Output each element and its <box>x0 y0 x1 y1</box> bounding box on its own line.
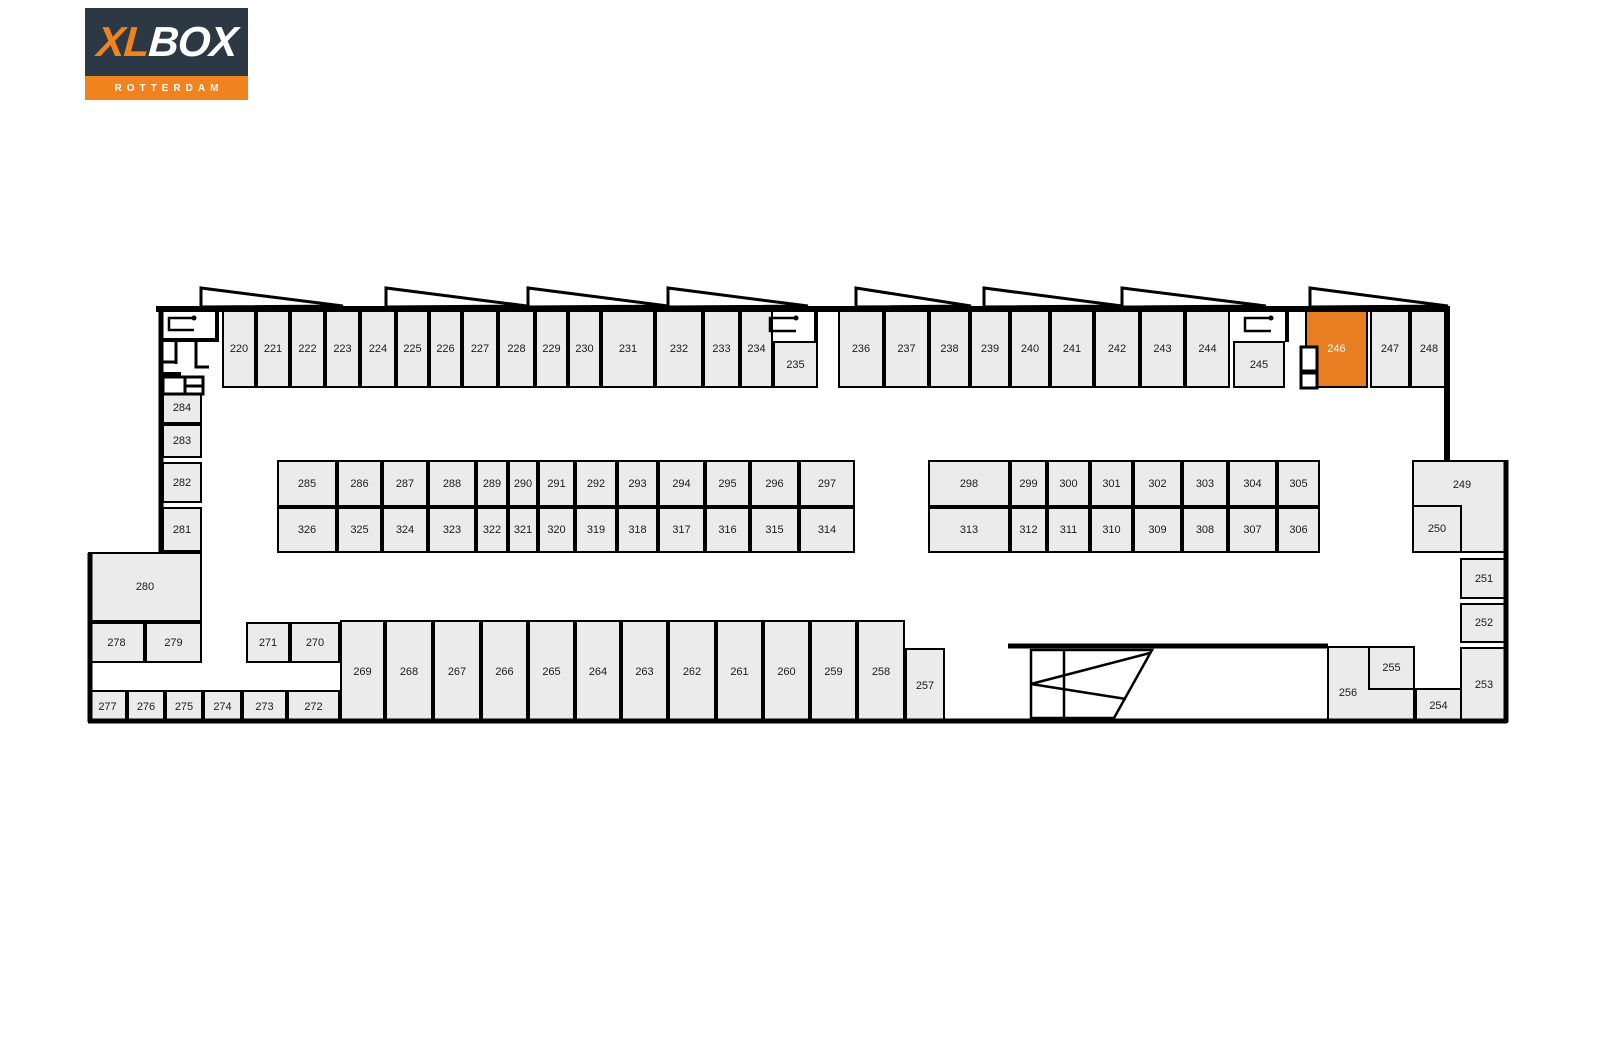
unit-262[interactable]: 262 <box>668 620 716 723</box>
unit-233[interactable]: 233 <box>703 309 740 388</box>
unit-301[interactable]: 301 <box>1090 460 1133 507</box>
unit-288[interactable]: 288 <box>428 460 476 507</box>
unit-298[interactable]: 298 <box>928 460 1010 507</box>
unit-292[interactable]: 292 <box>575 460 617 507</box>
unit-label: 269 <box>353 666 371 678</box>
unit-279[interactable]: 279 <box>145 622 202 663</box>
unit-252[interactable]: 252 <box>1460 603 1508 643</box>
unit-269[interactable]: 269 <box>340 620 385 723</box>
unit-275[interactable]: 275 <box>165 690 203 723</box>
unit-label: 250 <box>1428 523 1446 535</box>
logo-xl: XL <box>95 18 150 65</box>
unit-label: 263 <box>635 666 653 678</box>
unit-272[interactable]: 272 <box>287 690 340 723</box>
unit-236[interactable]: 236 <box>838 309 884 388</box>
unit-label: 316 <box>718 524 736 536</box>
unit-label: 295 <box>718 478 736 490</box>
unit-260[interactable]: 260 <box>763 620 810 723</box>
entrance-partitions <box>159 342 209 374</box>
unit-245[interactable]: 245 <box>1233 341 1285 388</box>
unit-318[interactable]: 318 <box>617 507 658 553</box>
unit-label: 228 <box>507 343 525 355</box>
unit-label: 231 <box>619 343 637 355</box>
unit-220[interactable]: 220 <box>222 309 256 388</box>
logo-wordmark: XLBOX <box>85 8 248 76</box>
unit-257[interactable]: 257 <box>905 648 945 723</box>
unit-317[interactable]: 317 <box>658 507 705 553</box>
unit-label: 240 <box>1021 343 1039 355</box>
unit-225[interactable]: 225 <box>396 309 429 388</box>
unit-250[interactable]: 250 <box>1412 505 1462 553</box>
unit-324[interactable]: 324 <box>382 507 428 553</box>
unit-290[interactable]: 290 <box>508 460 538 507</box>
unit-label: 275 <box>175 701 193 713</box>
unit-266[interactable]: 266 <box>481 620 528 723</box>
unit-287[interactable]: 287 <box>382 460 428 507</box>
unit-label: 278 <box>107 637 125 649</box>
unit-label: 259 <box>824 666 842 678</box>
unit-253[interactable]: 253 <box>1460 647 1508 723</box>
unit-244[interactable]: 244 <box>1185 309 1230 388</box>
unit-label: 227 <box>471 343 489 355</box>
unit-283[interactable]: 283 <box>162 424 202 458</box>
unit-310[interactable]: 310 <box>1090 507 1133 553</box>
unit-314[interactable]: 314 <box>799 507 855 553</box>
unit-322[interactable]: 322 <box>476 507 508 553</box>
unit-label: 310 <box>1102 524 1120 536</box>
unit-234[interactable]: 234 <box>740 309 773 388</box>
unit-label: 324 <box>396 524 414 536</box>
unit-311[interactable]: 311 <box>1047 507 1090 553</box>
unit-label: 283 <box>173 435 191 447</box>
floor-plan: XLBOX ROTTERDAM 220221222223224225226227… <box>0 0 1600 1040</box>
unit-label: 288 <box>443 478 461 490</box>
unit-271[interactable]: 271 <box>246 622 290 663</box>
unit-276[interactable]: 276 <box>127 690 165 723</box>
unit-246[interactable]: 246 <box>1305 309 1368 388</box>
unit-277[interactable]: 277 <box>88 690 127 723</box>
unit-293[interactable]: 293 <box>617 460 658 507</box>
unit-label: 232 <box>670 343 688 355</box>
unit-label: 243 <box>1153 343 1171 355</box>
unit-300[interactable]: 300 <box>1047 460 1090 507</box>
unit-label: 312 <box>1019 524 1037 536</box>
unit-label: 247 <box>1381 343 1399 355</box>
unit-295[interactable]: 295 <box>705 460 750 507</box>
unit-294[interactable]: 294 <box>658 460 705 507</box>
unit-label: 307 <box>1243 524 1261 536</box>
stairs-icon <box>1031 650 1152 718</box>
unit-235[interactable]: 235 <box>773 341 818 388</box>
unit-221[interactable]: 221 <box>256 309 290 388</box>
unit-285[interactable]: 285 <box>277 460 337 507</box>
unit-247[interactable]: 247 <box>1370 309 1410 388</box>
unit-label: 248 <box>1420 343 1438 355</box>
unit-label: 245 <box>1250 359 1268 371</box>
unit-label: 244 <box>1198 343 1216 355</box>
unit-label: 318 <box>628 524 646 536</box>
logo-text: XLBOX <box>95 21 238 63</box>
unit-291[interactable]: 291 <box>538 460 575 507</box>
unit-label: 279 <box>164 637 182 649</box>
unit-label: 299 <box>1019 478 1037 490</box>
unit-label: 303 <box>1196 478 1214 490</box>
unit-label: 289 <box>483 478 501 490</box>
unit-label: 282 <box>173 477 191 489</box>
unit-label: 237 <box>897 343 915 355</box>
unit-223[interactable]: 223 <box>325 309 360 388</box>
unit-label: 260 <box>777 666 795 678</box>
unit-231[interactable]: 231 <box>601 309 655 388</box>
unit-label: 251 <box>1475 573 1493 585</box>
unit-label: 241 <box>1063 343 1081 355</box>
unit-label: 224 <box>369 343 387 355</box>
unit-label: 230 <box>575 343 593 355</box>
unit-label: 235 <box>786 359 804 371</box>
unit-label: 284 <box>173 402 191 414</box>
unit-243[interactable]: 243 <box>1140 309 1185 388</box>
unit-label: 246 <box>1327 343 1345 355</box>
logo-box: BOX <box>147 18 238 65</box>
unit-label: 314 <box>818 524 836 536</box>
unit-299[interactable]: 299 <box>1010 460 1047 507</box>
unit-261[interactable]: 261 <box>716 620 763 723</box>
unit-label: 309 <box>1148 524 1166 536</box>
unit-label: 267 <box>448 666 466 678</box>
unit-264[interactable]: 264 <box>575 620 621 723</box>
unit-302[interactable]: 302 <box>1133 460 1182 507</box>
unit-286[interactable]: 286 <box>337 460 382 507</box>
unit-267[interactable]: 267 <box>433 620 481 723</box>
unit-label: 265 <box>542 666 560 678</box>
unit-label: 277 <box>98 701 116 713</box>
unit-label: 256 <box>1339 687 1357 699</box>
unit-label: 271 <box>259 637 277 649</box>
logo-city-bar: ROTTERDAM <box>85 76 248 100</box>
unit-281[interactable]: 281 <box>162 507 202 552</box>
unit-228[interactable]: 228 <box>498 309 535 388</box>
unit-296[interactable]: 296 <box>750 460 799 507</box>
unit-label: 261 <box>730 666 748 678</box>
unit-label: 298 <box>960 478 978 490</box>
unit-label: 281 <box>173 524 191 536</box>
unit-label: 320 <box>547 524 565 536</box>
unit-306[interactable]: 306 <box>1277 507 1320 553</box>
door-swing-icon <box>1245 316 1274 332</box>
unit-224[interactable]: 224 <box>360 309 396 388</box>
unit-label: 258 <box>872 666 890 678</box>
unit-label: 264 <box>589 666 607 678</box>
unit-316[interactable]: 316 <box>705 507 750 553</box>
unit-label: 262 <box>683 666 701 678</box>
unit-label: 234 <box>747 343 765 355</box>
unit-label: 302 <box>1148 478 1166 490</box>
unit-312[interactable]: 312 <box>1010 507 1047 553</box>
unit-label: 280 <box>136 581 154 593</box>
door-swing-icon <box>770 316 799 332</box>
unit-label: 321 <box>514 524 532 536</box>
unit-label: 236 <box>852 343 870 355</box>
unit-241[interactable]: 241 <box>1050 309 1094 388</box>
unit-308[interactable]: 308 <box>1182 507 1228 553</box>
unit-320[interactable]: 320 <box>538 507 575 553</box>
unit-label: 254 <box>1429 700 1447 712</box>
unit-label: 233 <box>712 343 730 355</box>
unit-label: 266 <box>495 666 513 678</box>
unit-label: 253 <box>1475 679 1493 691</box>
unit-label: 286 <box>350 478 368 490</box>
unit-278[interactable]: 278 <box>88 622 145 663</box>
unit-227[interactable]: 227 <box>462 309 498 388</box>
unit-label: 311 <box>1060 524 1078 536</box>
unit-248[interactable]: 248 <box>1410 309 1448 388</box>
unit-307[interactable]: 307 <box>1228 507 1277 553</box>
unit-label: 292 <box>587 478 605 490</box>
unit-label: 239 <box>981 343 999 355</box>
unit-label: 273 <box>255 701 273 713</box>
xlbox-logo: XLBOX ROTTERDAM <box>85 8 248 100</box>
unit-label: 308 <box>1196 524 1214 536</box>
unit-label: 323 <box>443 524 461 536</box>
unit-222[interactable]: 222 <box>290 309 325 388</box>
unit-263[interactable]: 263 <box>621 620 668 723</box>
unit-315[interactable]: 315 <box>750 507 799 553</box>
unit-label: 268 <box>400 666 418 678</box>
unit-label: 255 <box>1382 662 1400 674</box>
unit-274[interactable]: 274 <box>203 690 242 723</box>
unit-323[interactable]: 323 <box>428 507 476 553</box>
unit-325[interactable]: 325 <box>337 507 382 553</box>
unit-label: 326 <box>298 524 316 536</box>
unit-label: 222 <box>298 343 316 355</box>
unit-label: 296 <box>765 478 783 490</box>
unit-305[interactable]: 305 <box>1277 460 1320 507</box>
unit-label: 319 <box>587 524 605 536</box>
unit-309[interactable]: 309 <box>1133 507 1182 553</box>
unit-297[interactable]: 297 <box>799 460 855 507</box>
unit-label: 270 <box>306 637 324 649</box>
unit-229[interactable]: 229 <box>535 309 568 388</box>
unit-label: 325 <box>350 524 368 536</box>
unit-label: 287 <box>396 478 414 490</box>
unit-280[interactable]: 280 <box>88 552 202 622</box>
unit-label: 313 <box>960 524 978 536</box>
unit-label: 285 <box>298 478 316 490</box>
unit-label: 274 <box>213 701 231 713</box>
unit-258[interactable]: 258 <box>857 620 905 723</box>
unit-label: 304 <box>1243 478 1261 490</box>
unit-304[interactable]: 304 <box>1228 460 1277 507</box>
unit-label: 226 <box>436 343 454 355</box>
unit-label: 322 <box>483 524 501 536</box>
unit-label: 276 <box>137 701 155 713</box>
unit-label: 249 <box>1453 479 1471 491</box>
unit-label: 257 <box>916 680 934 692</box>
unit-259[interactable]: 259 <box>810 620 857 723</box>
unit-303[interactable]: 303 <box>1182 460 1228 507</box>
unit-230[interactable]: 230 <box>568 309 601 388</box>
unit-label: 294 <box>672 478 690 490</box>
unit-319[interactable]: 319 <box>575 507 617 553</box>
door-swing-icon <box>169 316 197 331</box>
unit-label: 242 <box>1108 343 1126 355</box>
unit-254[interactable]: 254 <box>1415 688 1462 723</box>
unit-label: 223 <box>333 343 351 355</box>
unit-237[interactable]: 237 <box>884 309 929 388</box>
unit-label: 291 <box>547 478 565 490</box>
unit-273[interactable]: 273 <box>242 690 287 723</box>
unit-255[interactable]: 255 <box>1368 646 1415 690</box>
unit-label: 301 <box>1102 478 1120 490</box>
unit-321[interactable]: 321 <box>508 507 538 553</box>
unit-265[interactable]: 265 <box>528 620 575 723</box>
unit-label: 300 <box>1059 478 1077 490</box>
sawtooth-roof-icon <box>201 288 1448 307</box>
unit-label: 297 <box>818 478 836 490</box>
unit-label: 290 <box>514 478 532 490</box>
unit-313[interactable]: 313 <box>928 507 1010 553</box>
unit-268[interactable]: 268 <box>385 620 433 723</box>
logo-city: ROTTERDAM <box>110 83 224 94</box>
unit-label: 317 <box>672 524 690 536</box>
unit-326[interactable]: 326 <box>277 507 337 553</box>
unit-label: 305 <box>1289 478 1307 490</box>
unit-label: 272 <box>304 701 322 713</box>
unit-label: 229 <box>542 343 560 355</box>
unit-282[interactable]: 282 <box>162 462 202 503</box>
unit-label: 225 <box>403 343 421 355</box>
unit-label: 220 <box>230 343 248 355</box>
unit-label: 315 <box>765 524 783 536</box>
unit-226[interactable]: 226 <box>429 309 462 388</box>
unit-label: 238 <box>940 343 958 355</box>
unit-label: 252 <box>1475 617 1493 629</box>
unit-251[interactable]: 251 <box>1460 558 1508 599</box>
unit-242[interactable]: 242 <box>1094 309 1140 388</box>
unit-label: 306 <box>1289 524 1307 536</box>
unit-238[interactable]: 238 <box>929 309 970 388</box>
unit-232[interactable]: 232 <box>655 309 703 388</box>
unit-289[interactable]: 289 <box>476 460 508 507</box>
unit-240[interactable]: 240 <box>1010 309 1050 388</box>
unit-label: 293 <box>628 478 646 490</box>
unit-label: 221 <box>264 343 282 355</box>
unit-270[interactable]: 270 <box>290 622 340 663</box>
unit-239[interactable]: 239 <box>970 309 1010 388</box>
unit-284[interactable]: 284 <box>162 391 202 424</box>
